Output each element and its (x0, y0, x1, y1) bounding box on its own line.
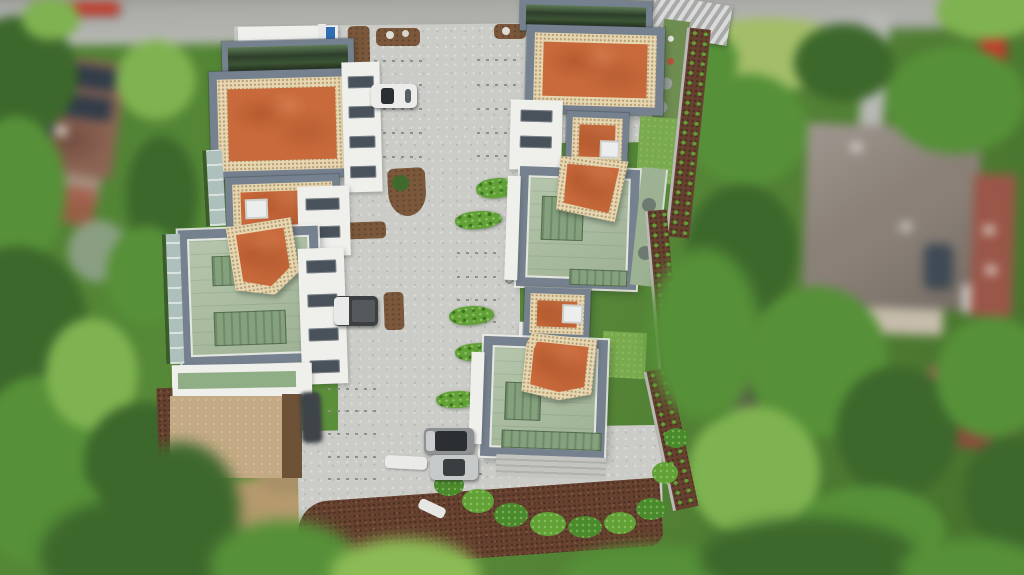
ornamental-stone (402, 30, 409, 37)
pickup-cab (334, 297, 349, 325)
window (348, 76, 374, 89)
parking-space-markings (457, 276, 501, 278)
parking-space-markings (457, 299, 501, 301)
entrance-sign (318, 24, 326, 39)
gravel-border (521, 333, 597, 404)
building-e-entrance-steps (496, 454, 607, 480)
hedge-bush (636, 498, 666, 520)
window (349, 136, 375, 149)
parking-space-markings (477, 84, 519, 86)
residential-complex (0, 0, 1024, 575)
lawn-strip (601, 331, 647, 379)
building-e-orange-terrace (521, 333, 597, 404)
planting-bed (383, 292, 404, 331)
hedge-bush (530, 512, 566, 536)
window (310, 359, 340, 373)
driveway (170, 396, 284, 478)
terrace-furniture (667, 35, 674, 42)
car-hood (426, 431, 435, 451)
hedge-bush (462, 489, 494, 513)
window (306, 260, 336, 274)
window (520, 136, 552, 149)
gravel-border (533, 32, 657, 107)
roof-hatch (214, 310, 287, 346)
hedge-bush (494, 503, 528, 527)
parking-space-markings (477, 59, 519, 61)
white-car (371, 84, 417, 108)
hedge-bush (604, 512, 636, 534)
parking-space-markings (457, 252, 501, 254)
aerial-photo (0, 0, 1024, 575)
window (350, 166, 376, 179)
parking-space-markings (374, 60, 422, 62)
building-b-orange-terrace (226, 217, 303, 300)
window (308, 327, 338, 341)
glass-roof (228, 44, 349, 71)
pickup-truck (334, 296, 378, 326)
roof-hatch (569, 269, 628, 287)
building-a-orange-roof (209, 68, 356, 180)
roof-hatch (501, 430, 602, 451)
car-glass (435, 431, 467, 451)
parking-space-markings (328, 388, 378, 390)
parking-space-markings (328, 456, 378, 458)
silver-car (430, 455, 478, 480)
orange-gravel-roof (542, 42, 647, 99)
parking-space-markings (374, 108, 422, 110)
pickup-bed-cover (352, 300, 375, 322)
car-glass (443, 459, 465, 476)
hedge-bush (652, 462, 678, 484)
orange-gravel-roof (530, 341, 589, 394)
building-c-west-facade (509, 99, 563, 170)
ornamental-stone (502, 27, 510, 35)
parking-space-markings (328, 410, 378, 412)
driveway-dark-strip (282, 394, 302, 478)
window (520, 110, 552, 123)
parking-space-markings (328, 433, 378, 435)
parked-car-blurred (300, 392, 323, 443)
white-trailer (385, 455, 428, 470)
skylight (601, 142, 617, 157)
hedge-bush (568, 516, 602, 538)
window (348, 106, 374, 119)
orange-gravel-roof (227, 87, 337, 162)
planting-bed (376, 28, 420, 46)
building-a-balcony-strip (202, 150, 226, 227)
building-a-east-facade (341, 62, 382, 193)
car-glass (381, 88, 394, 104)
orange-gravel-roof (236, 228, 292, 291)
car-glass (405, 89, 411, 103)
hedge-bush (664, 428, 688, 448)
parking-space-markings (328, 478, 378, 480)
gravel-border (529, 293, 584, 335)
gravel-border (217, 76, 347, 171)
gravel-border (226, 217, 303, 300)
window (305, 198, 339, 211)
terrace-planter (667, 57, 675, 65)
ornamental-stone (386, 31, 394, 39)
orange-gravel-roof (561, 160, 620, 214)
green-terrace-strip (178, 371, 296, 389)
small-tree (392, 175, 409, 191)
building-d-orange-terrace (552, 151, 629, 223)
dark-suv (424, 428, 474, 454)
skylight (247, 201, 267, 218)
gravel-border (552, 151, 629, 223)
skylight (564, 306, 582, 322)
